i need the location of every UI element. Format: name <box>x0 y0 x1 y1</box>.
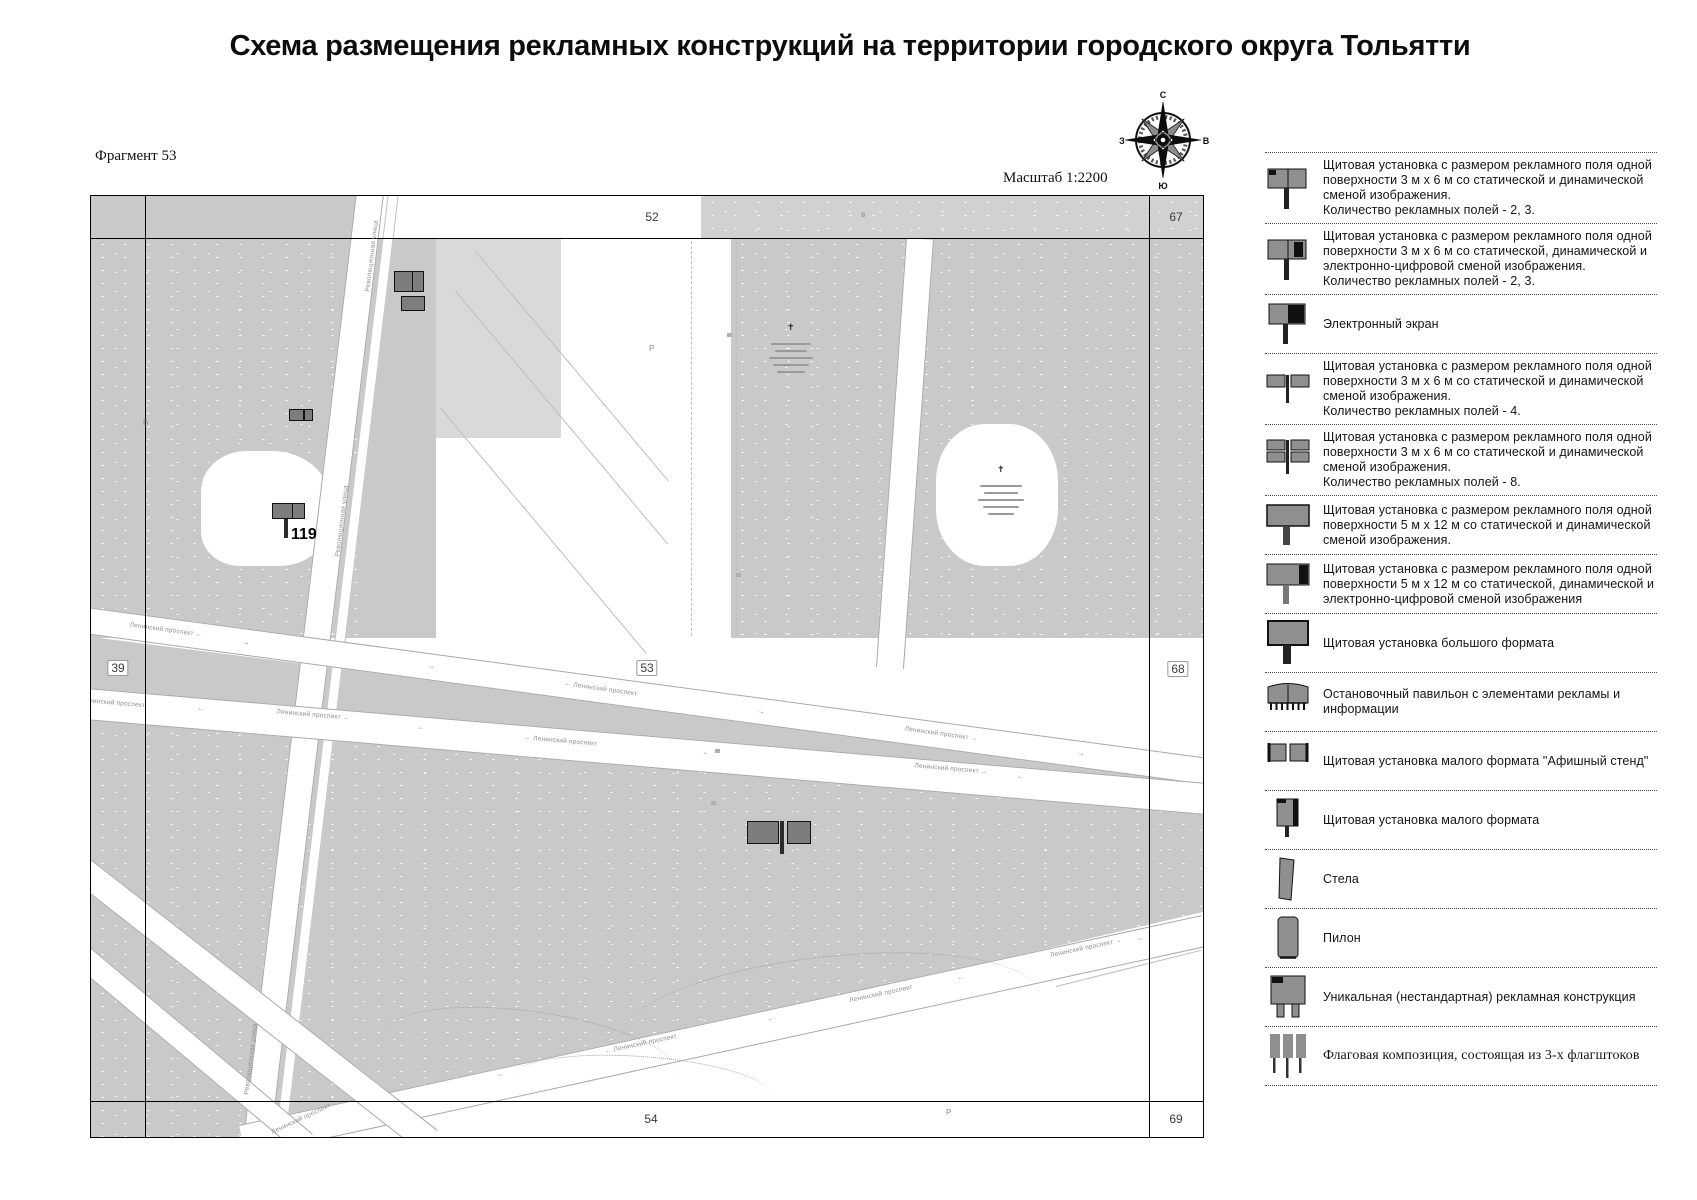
road-direction-arrow: → <box>1076 748 1085 758</box>
billboard-marker-icon <box>401 296 425 311</box>
road-direction-arrow: ← <box>956 972 966 983</box>
map-micro-label: в <box>861 210 865 219</box>
legend-item-text: Флаговая композиция, состоящая из 3-х фл… <box>1323 1048 1657 1065</box>
map-sheet-number: 67 <box>1169 210 1182 224</box>
legend-item: Щитовая установка с размером рекламного … <box>1265 226 1657 292</box>
legend-separator <box>1265 731 1657 732</box>
billboard-5x12-icon <box>1265 501 1323 549</box>
sheet-grid-line <box>1149 196 1150 1137</box>
legend-item-text: Щитовая установка с размером рекламного … <box>1323 158 1657 218</box>
large-format-billboard-icon <box>1265 619 1323 667</box>
micro-text-line <box>775 350 807 352</box>
micro-text-line <box>984 492 1018 494</box>
legend-item: Щитовая установка большого формата <box>1265 616 1657 670</box>
legend-separator <box>1265 908 1657 909</box>
road-direction-arrow: ← <box>1136 933 1146 944</box>
legend-separator <box>1265 790 1657 791</box>
legend-item: Щитовая установка с размером рекламного … <box>1265 427 1657 493</box>
path-line <box>440 408 646 654</box>
clearing <box>201 451 331 566</box>
terrain-patch <box>701 196 1203 238</box>
legend-item: Электронный экран <box>1265 297 1657 351</box>
legend-item: Пилон <box>1265 911 1657 965</box>
sheet-grid-line <box>91 1101 1203 1102</box>
legend-item-text: Щитовая установка большого формата <box>1323 636 1657 651</box>
billboard-marker-icon <box>289 409 313 421</box>
map-marker <box>711 801 716 805</box>
legend-separator <box>1265 353 1657 354</box>
electronic-screen-icon <box>1265 300 1323 348</box>
micro-text-line <box>988 513 1014 515</box>
legend-separator <box>1265 223 1657 224</box>
small-format-billboard-icon <box>1265 796 1323 844</box>
billboard-marker-icon <box>787 821 811 844</box>
legend-item-text: Щитовая установка малого формата "Афишны… <box>1323 754 1657 769</box>
road-direction-arrow: ← <box>417 722 426 732</box>
page: { "title": "Схема размещения рекламных к… <box>0 0 1697 1200</box>
legend-item-text: Щитовая установка малого формата <box>1323 813 1657 828</box>
micro-text-line <box>771 343 811 345</box>
map-marker <box>736 573 741 577</box>
legend-item-text: Электронный экран <box>1323 317 1657 332</box>
micro-text-line <box>980 485 1022 487</box>
compass-rose-icon: С Ю З В <box>1118 88 1210 192</box>
billboard-pole <box>284 519 288 538</box>
billboard-divider <box>303 410 305 420</box>
micro-text-line <box>983 506 1019 508</box>
map-micro-label: Р <box>946 1108 951 1117</box>
sheet-grid-line <box>91 238 1203 239</box>
scale-label: Масштаб 1:2200 <box>1003 170 1108 187</box>
billboard-8-fields-icon <box>1265 436 1323 484</box>
map-micro-label: Р <box>649 344 654 353</box>
map-sheet-number: 53 <box>636 660 657 676</box>
legend-item: Щитовая установка малого формата <box>1265 793 1657 847</box>
map-sheet-number: 54 <box>644 1112 657 1126</box>
billboard-divider <box>292 504 294 518</box>
legend-separator <box>1265 554 1657 555</box>
billboard-pole <box>780 821 784 854</box>
billboard-3x6-icon <box>1265 164 1323 212</box>
legend-item-text: Щитовая установка с размером рекламного … <box>1323 359 1657 419</box>
legend-item: Щитовая установка малого формата "Афишны… <box>1265 734 1657 788</box>
page-title: Схема размещения рекламных конструкций н… <box>150 30 1550 63</box>
legend-item: Щитовая установка с размером рекламного … <box>1265 155 1657 221</box>
micro-text-line <box>777 371 805 373</box>
map-marker <box>715 749 720 753</box>
legend-item: Щитовая установка с размером рекламного … <box>1265 557 1657 611</box>
legend-item: Уникальная (нестандартная) рекламная кон… <box>1265 970 1657 1024</box>
map-marker <box>727 333 732 337</box>
legend-item-text: Щитовая установка с размером рекламного … <box>1323 503 1657 548</box>
billboard-divider <box>412 272 414 291</box>
map-micro-label: Б <box>143 418 148 427</box>
billboard-marker-icon <box>747 821 779 844</box>
legend: Щитовая установка с размером рекламного … <box>1265 150 1657 1088</box>
pylon-icon <box>1265 914 1323 962</box>
road-direction-arrow: ← <box>1017 771 1026 781</box>
legend-item-text: Щитовая установка с размером рекламного … <box>1323 229 1657 289</box>
legend-separator <box>1265 294 1657 295</box>
map-sheet-number: 52 <box>645 210 658 224</box>
map-sheet-number: 68 <box>1167 661 1188 677</box>
cross-icon: ✝ <box>787 322 795 333</box>
legend-item-text: Щитовая установка с размером рекламного … <box>1323 562 1657 607</box>
legend-separator <box>1265 613 1657 614</box>
map-fragment-53: ✝ ✝ Революционная улицаРеволюционная ули… <box>90 195 1204 1138</box>
compass-star <box>1118 88 1210 192</box>
compass-west-label: З <box>1119 136 1125 146</box>
legend-item: Щитовая установка с размером рекламного … <box>1265 356 1657 422</box>
legend-item-text: Остановочный павильон с элементами рекла… <box>1323 687 1657 717</box>
legend-item-text: Пилон <box>1323 931 1657 946</box>
road-direction-arrow: → <box>426 661 435 671</box>
legend-separator <box>1265 495 1657 496</box>
micro-text-line <box>978 499 1024 501</box>
sheet-grid-line <box>145 196 146 1137</box>
legend-item-text: Уникальная (нестандартная) рекламная кон… <box>1323 990 1657 1005</box>
legend-separator <box>1265 424 1657 425</box>
fragment-label: Фрагмент 53 <box>95 148 176 165</box>
legend-separator <box>1265 849 1657 850</box>
clearing <box>936 424 1058 566</box>
billboard-number-label: 119 <box>291 526 317 544</box>
compass-north-label: С <box>1160 90 1167 100</box>
map-sheet-number: 69 <box>1169 1112 1182 1126</box>
billboard-marker-icon <box>272 503 305 519</box>
legend-separator <box>1265 672 1657 673</box>
legend-item: Стела <box>1265 852 1657 906</box>
road-direction-arrow: ← <box>766 1013 776 1024</box>
legend-separator <box>1265 1085 1657 1086</box>
legend-separator <box>1265 1026 1657 1027</box>
stela-icon <box>1265 855 1323 903</box>
unique-construction-icon <box>1265 973 1323 1021</box>
billboard-3x6-digital-icon <box>1265 235 1323 283</box>
map-sheet-number: 39 <box>107 660 128 676</box>
micro-text-line <box>773 364 809 366</box>
bus-shelter-icon <box>1265 678 1323 726</box>
boundary-dashed-line <box>691 241 692 636</box>
road-direction-arrow: → <box>756 706 765 716</box>
road-direction-arrow: ← <box>197 703 206 713</box>
flag-composition-icon <box>1265 1032 1323 1080</box>
road-direction-arrow: ← <box>496 1069 506 1080</box>
legend-separator <box>1265 967 1657 968</box>
legend-item-text: Щитовая установка с размером рекламного … <box>1323 430 1657 490</box>
billboard-4-fields-icon <box>1265 365 1323 413</box>
poster-stand-icon <box>1265 737 1323 785</box>
cross-icon: ✝ <box>997 464 1005 475</box>
compass-east-label: В <box>1203 136 1210 146</box>
billboard-5x12-digital-icon <box>1265 560 1323 608</box>
micro-text-line <box>769 357 813 359</box>
road-direction-arrow: → <box>241 637 250 647</box>
road-direction-arrow: ← <box>702 747 711 757</box>
compass-south-label: Ю <box>1158 181 1167 191</box>
billboard-marker-icon <box>394 271 424 292</box>
legend-item-text: Стела <box>1323 872 1657 887</box>
terrain-patch <box>91 196 361 238</box>
legend-item: Флаговая композиция, состоящая из 3-х фл… <box>1265 1029 1657 1083</box>
legend-separator <box>1265 152 1657 153</box>
legend-item: Остановочный павильон с элементами рекла… <box>1265 675 1657 729</box>
legend-item: Щитовая установка с размером рекламного … <box>1265 498 1657 552</box>
